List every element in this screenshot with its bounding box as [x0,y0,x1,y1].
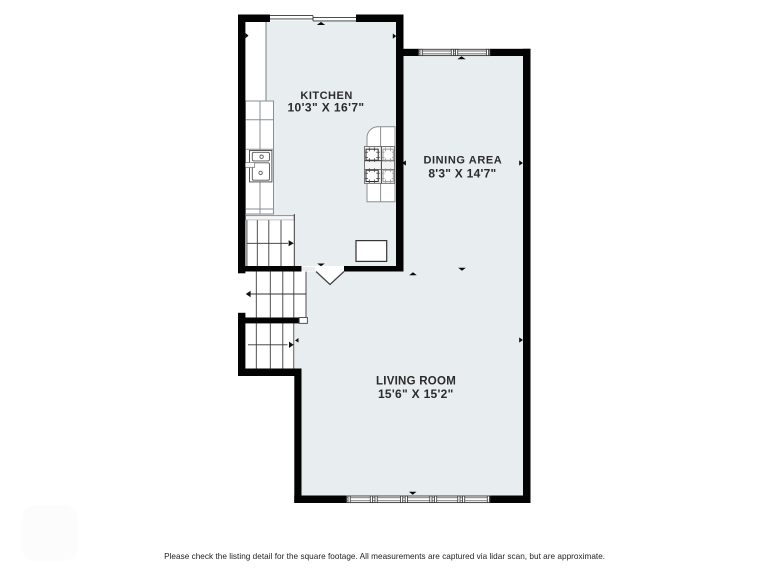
svg-text:15'6" X 15'2": 15'6" X 15'2" [378,387,454,401]
svg-text:8'3" X 14'7": 8'3" X 14'7" [428,166,496,180]
svg-text:Please check the listing detai: Please check the listing detail for the … [164,552,605,561]
svg-text:10'3" X 16'7": 10'3" X 16'7" [287,101,364,115]
svg-text:DINING AREA: DINING AREA [423,155,502,167]
